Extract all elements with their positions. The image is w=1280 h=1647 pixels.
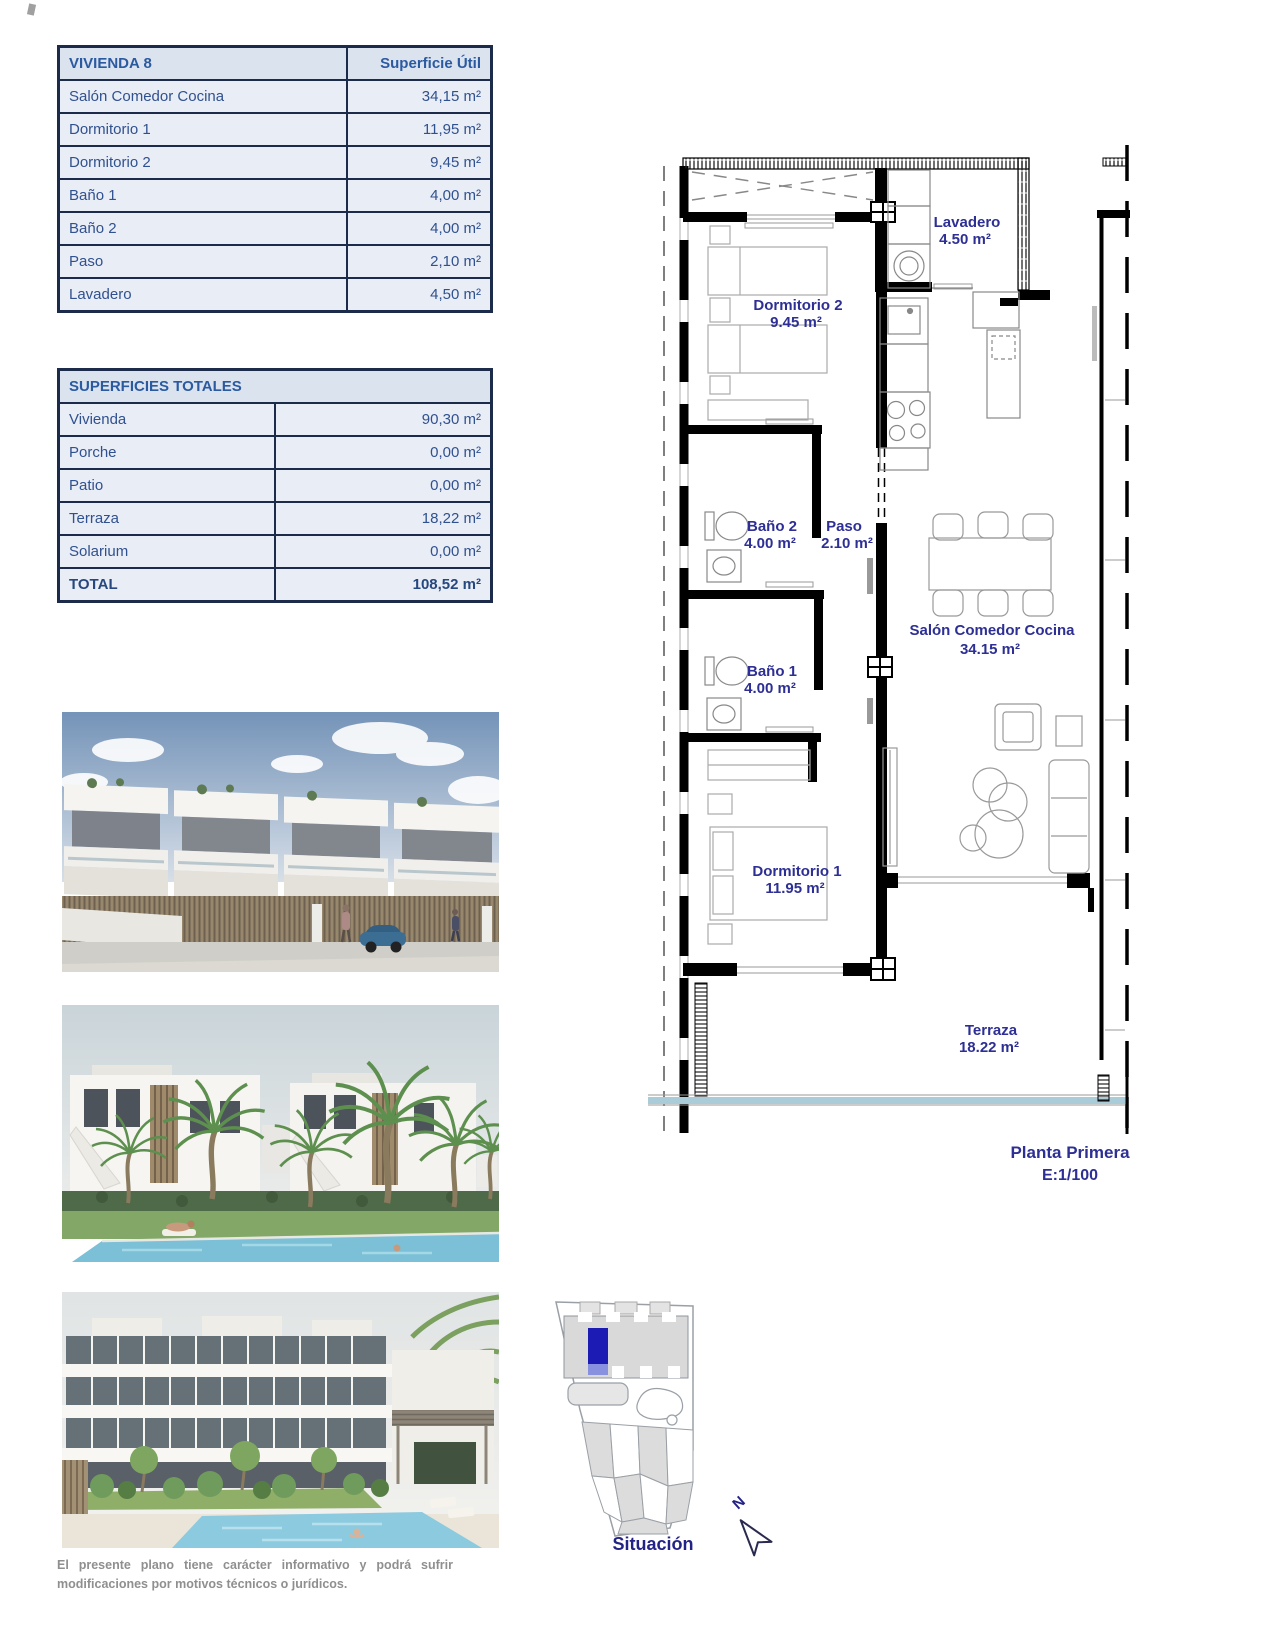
gallery-diagonals [692, 172, 873, 200]
row-label: Baño 1 [59, 179, 348, 212]
room-area-dormitorio2: 9.45 m² [770, 314, 822, 331]
table-row: Baño 14,00 m² [59, 179, 492, 212]
interior-walls [683, 168, 1094, 976]
room-area-bano1: 4.00 m² [744, 680, 796, 697]
glass-balustrade [648, 1097, 1127, 1104]
site-top-blocks [564, 1302, 688, 1378]
table-row: Baño 24,00 m² [59, 212, 492, 245]
room-area-bano2: 4.00 m² [744, 535, 796, 552]
north-arrow: N [729, 1493, 771, 1555]
site-plan-label: Situación [612, 1534, 693, 1554]
site-lower-parcels [582, 1422, 693, 1534]
totales-table: SUPERFICIES TOTALES Vivienda90,30 m² Por… [57, 368, 493, 603]
row-value: 0,00 m² [275, 535, 492, 568]
room-area-paso: 2.10 m² [821, 535, 873, 552]
render-photo-apartments [62, 1292, 499, 1548]
row-label: Salón Comedor Cocina [59, 80, 348, 113]
table-total-row: TOTAL108,52 m² [59, 568, 492, 602]
room-label-dormitorio1: Dormitorio 1 [752, 863, 841, 880]
room-label-paso: Paso [826, 518, 862, 535]
table-row: Patio0,00 m² [59, 469, 492, 502]
table-header-value: Superficie Útil [347, 47, 491, 81]
room-label-terraza: Terraza [965, 1022, 1018, 1039]
room-area-salon: 34.15 m² [960, 641, 1020, 658]
render-photo-street [62, 712, 499, 972]
plan-caption-title: Planta Primera [1010, 1143, 1130, 1162]
table-header-row: VIVIENDA 8 Superficie Útil [59, 47, 492, 81]
row-label: Paso [59, 245, 348, 278]
bathroom-fixtures [705, 512, 748, 730]
north-label: N [729, 1493, 748, 1513]
room-area-terraza: 18.22 m² [959, 1039, 1019, 1056]
floor-plan: Lavadero 4.50 m² Dormitorio 2 9.45 m² Ba… [640, 138, 1140, 1200]
total-value: 108,52 m² [275, 568, 492, 602]
row-value: 4,50 m² [347, 278, 491, 312]
plan-sheet-page: VIVIENDA 8 Superficie Útil Salón Comedor… [0, 0, 1280, 1647]
render-photo-pool-garden [62, 1005, 499, 1262]
row-label: Porche [59, 436, 276, 469]
row-value: 4,00 m² [347, 212, 491, 245]
room-label-lavadero: Lavadero [934, 214, 1001, 231]
room-label-bano2: Baño 2 [747, 518, 797, 535]
table-row: Dormitorio 29,45 m² [59, 146, 492, 179]
site-plan: Situación N [520, 1250, 780, 1570]
row-value: 34,15 m² [347, 80, 491, 113]
exterior-walls [664, 145, 1130, 1140]
table-row: Solarium0,00 m² [59, 535, 492, 568]
plan-caption-scale: E:1/100 [1042, 1167, 1098, 1184]
table-row: Vivienda90,30 m² [59, 403, 492, 436]
row-value: 4,00 m² [347, 179, 491, 212]
row-label: Patio [59, 469, 276, 502]
table-row: Dormitorio 111,95 m² [59, 113, 492, 146]
livingroom-furniture [883, 512, 1089, 873]
row-value: 90,30 m² [275, 403, 492, 436]
total-label: TOTAL [59, 568, 276, 602]
room-label-dormitorio2: Dormitorio 2 [753, 297, 842, 314]
row-label: Dormitorio 1 [59, 113, 348, 146]
table-row: Salón Comedor Cocina34,15 m² [59, 80, 492, 113]
row-value: 9,45 m² [347, 146, 491, 179]
table-title: SUPERFICIES TOTALES [59, 370, 492, 404]
highlighted-unit [588, 1328, 608, 1364]
row-value: 11,95 m² [347, 113, 491, 146]
row-value: 0,00 m² [275, 436, 492, 469]
room-label-salon: Salón Comedor Cocina [909, 622, 1075, 639]
room-area-lavadero: 4.50 m² [939, 231, 991, 248]
terrace [648, 983, 1127, 1134]
room-label-bano1: Baño 1 [747, 663, 797, 680]
table-row: Paso2,10 m² [59, 245, 492, 278]
row-label: Vivienda [59, 403, 276, 436]
row-label: Dormitorio 2 [59, 146, 348, 179]
vivienda-table: VIVIENDA 8 Superficie Útil Salón Comedor… [57, 45, 493, 313]
row-label: Baño 2 [59, 212, 348, 245]
row-label: Lavadero [59, 278, 348, 312]
table-header-row: SUPERFICIES TOTALES [59, 370, 492, 404]
table-row: Lavadero4,50 m² [59, 278, 492, 312]
row-label: Terraza [59, 502, 276, 535]
disclaimer-text: El presente plano tiene carácter informa… [57, 1556, 453, 1594]
row-value: 2,10 m² [347, 245, 491, 278]
room-area-dormitorio1: 11.95 m² [765, 880, 824, 897]
table-row: Terraza18,22 m² [59, 502, 492, 535]
row-value: 18,22 m² [275, 502, 492, 535]
scan-artifact [27, 3, 36, 15]
row-label: Solarium [59, 535, 276, 568]
row-value: 0,00 m² [275, 469, 492, 502]
table-row: Porche0,00 m² [59, 436, 492, 469]
table-title: VIVIENDA 8 [59, 47, 348, 81]
